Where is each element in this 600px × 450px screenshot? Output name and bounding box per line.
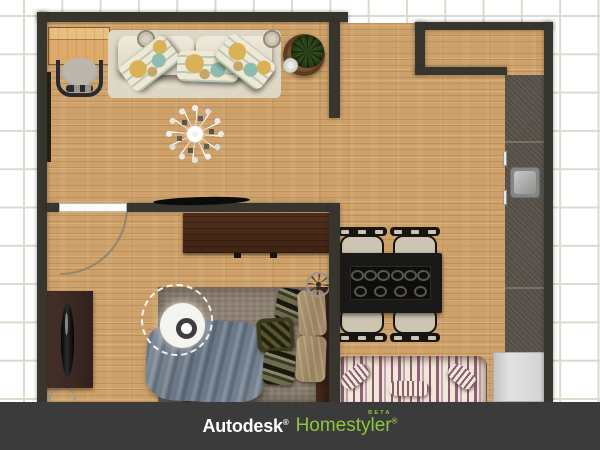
plate[interactable]: [283, 58, 298, 73]
bed-pillow-tan[interactable]: [295, 335, 327, 382]
table-runner: [350, 266, 431, 300]
wall-left[interactable]: [37, 12, 47, 402]
radiator[interactable]: [47, 72, 51, 162]
chair-crest: [337, 333, 387, 342]
dresser-leg: [270, 253, 277, 258]
television[interactable]: [61, 303, 74, 377]
selection-ring: [141, 284, 213, 356]
floor-plan-canvas[interactable]: Autodesk® BETA Homestyler®: [0, 0, 600, 450]
wall-right[interactable]: [544, 22, 553, 402]
refrigerator[interactable]: [493, 352, 545, 402]
wall-closet-bottom[interactable]: [415, 67, 507, 75]
autodesk-logo: Autodesk®: [202, 416, 288, 437]
beta-badge: BETA: [368, 410, 391, 416]
sink[interactable]: [510, 167, 540, 198]
registered-mark: ®: [283, 418, 289, 427]
cabinet-handle: [503, 151, 507, 166]
tv-console[interactable]: [45, 291, 93, 388]
chair-crest: [390, 333, 440, 342]
bed-pillow-tan[interactable]: [297, 289, 327, 336]
dresser[interactable]: [183, 213, 330, 253]
table-fan[interactable]: [306, 272, 331, 297]
homestyler-logo: BETA Homestyler®: [296, 415, 398, 437]
door[interactable]: [59, 203, 127, 212]
kitchen-counter[interactable]: [505, 75, 544, 353]
wall-bedroom-partition[interactable]: [47, 203, 59, 212]
dresser-leg: [234, 253, 241, 258]
wall-entry-partition[interactable]: [329, 22, 340, 118]
counter-divider: [505, 287, 544, 289]
wall-bedroom-partition[interactable]: [127, 203, 330, 212]
counter-divider: [505, 141, 544, 143]
desk-chair[interactable]: [56, 60, 103, 97]
sofa-corner-lamp[interactable]: [263, 30, 281, 48]
chandelier[interactable]: [163, 102, 227, 166]
wall-dining-partition[interactable]: [329, 203, 340, 402]
bed-pillow-striped[interactable]: [262, 350, 296, 386]
registered-mark: ®: [392, 417, 398, 426]
dining-table[interactable]: [339, 253, 442, 313]
bolster-pillow[interactable]: [389, 381, 429, 397]
bed-pillow-diamond[interactable]: [256, 317, 295, 353]
cabinet-handle: [503, 190, 507, 205]
wall-closet-top[interactable]: [415, 22, 553, 30]
footer-bar: Autodesk® BETA Homestyler®: [0, 402, 600, 450]
wall-top[interactable]: [37, 12, 348, 22]
chandelier-arms: [193, 132, 198, 137]
